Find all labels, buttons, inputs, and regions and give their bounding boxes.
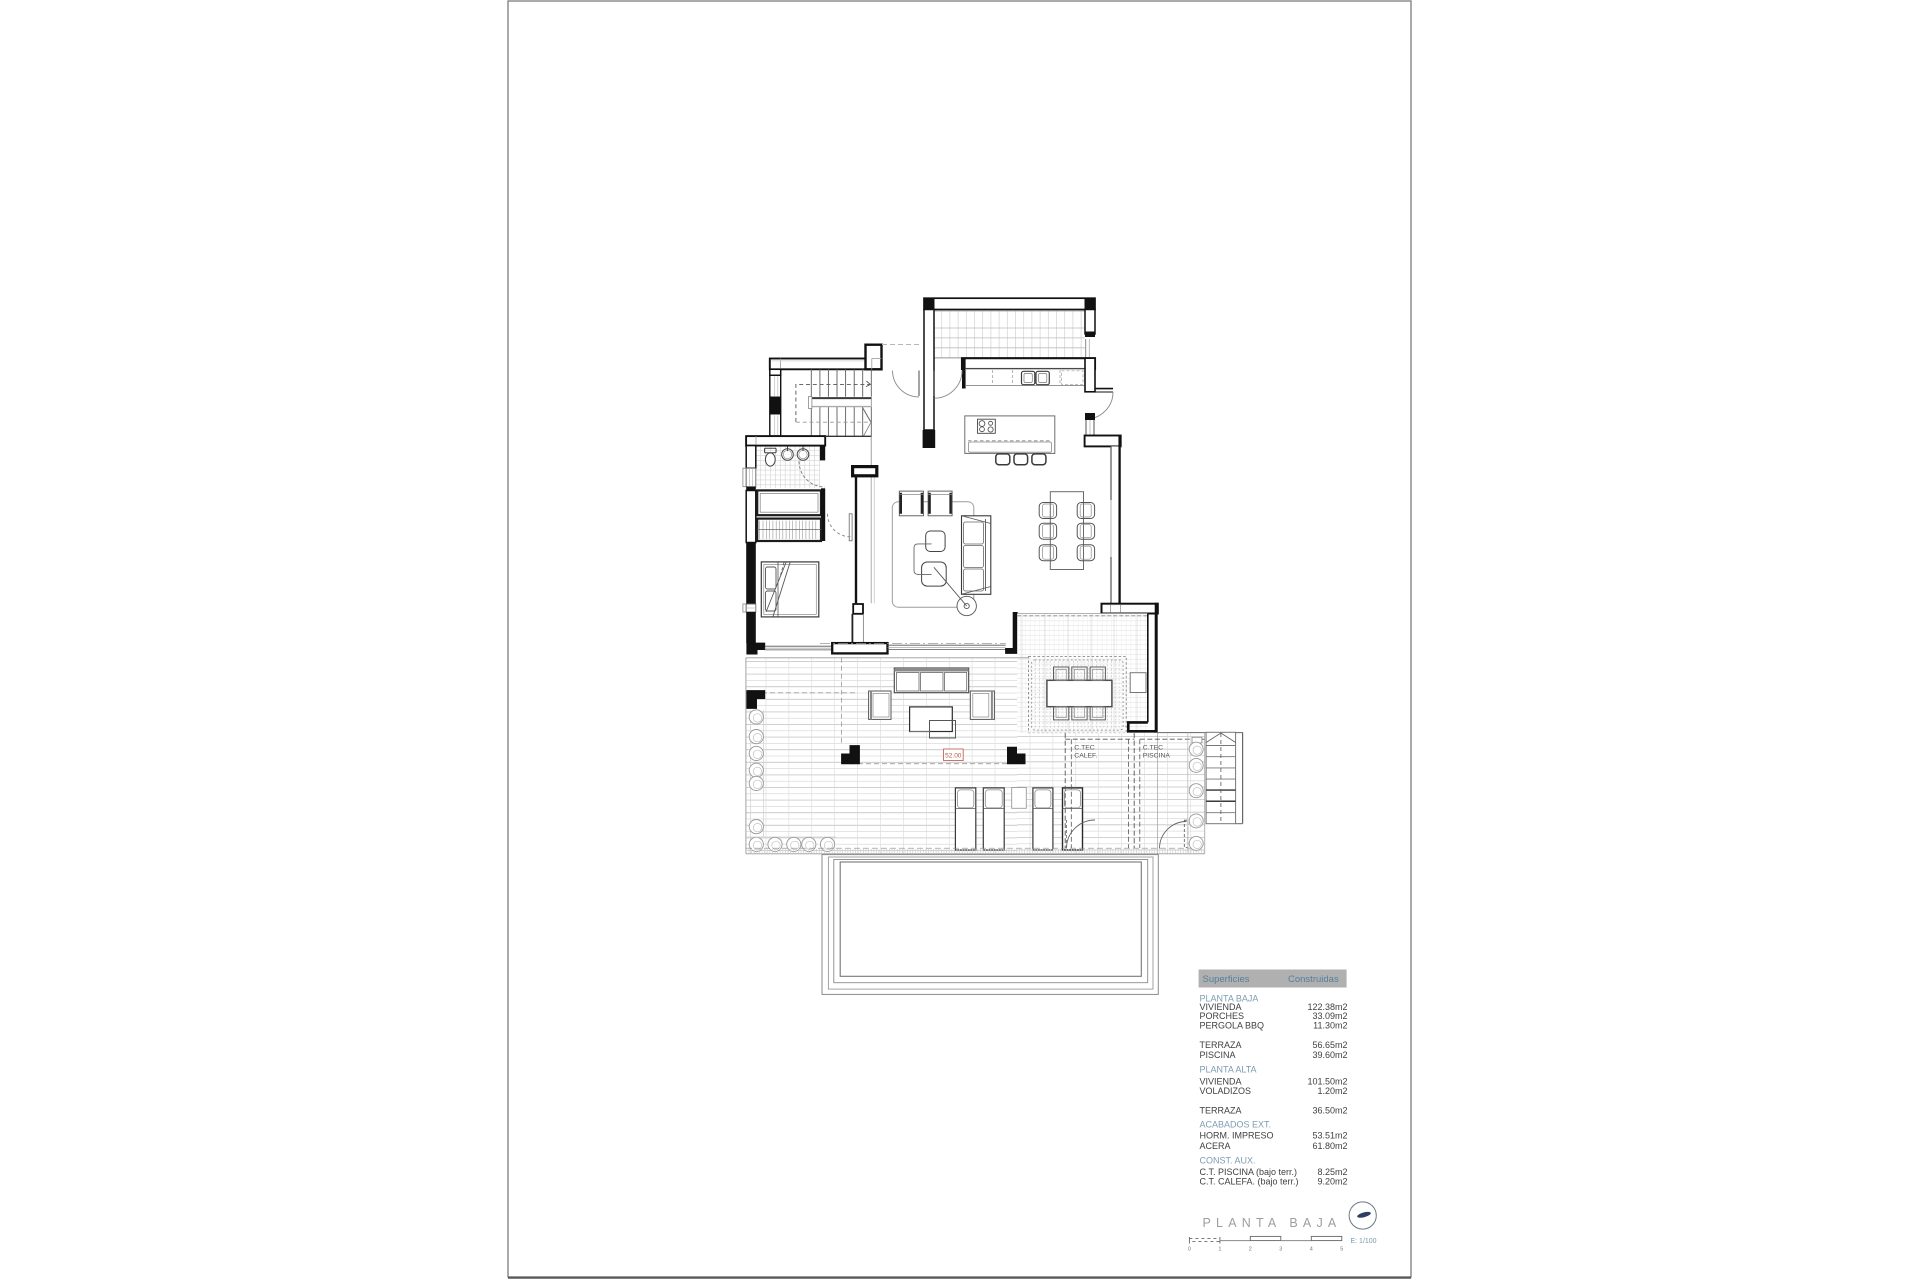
svg-text:C.TEC: C.TEC	[1074, 745, 1094, 752]
svg-text:C.T. PISCINA (bajo terr.): C.T. PISCINA (bajo terr.)	[1200, 1167, 1298, 1177]
svg-text:TERRAZA: TERRAZA	[1200, 1106, 1242, 1116]
svg-text:56.65m2: 56.65m2	[1312, 1040, 1347, 1050]
svg-text:VIVIENDA: VIVIENDA	[1200, 1077, 1242, 1087]
svg-text:36.50m2: 36.50m2	[1312, 1106, 1347, 1116]
svg-text:E: 1/100: E: 1/100	[1351, 1238, 1377, 1245]
svg-text:61.80m2: 61.80m2	[1312, 1141, 1347, 1151]
svg-text:4: 4	[1310, 1247, 1313, 1253]
svg-text:3: 3	[1279, 1247, 1282, 1253]
svg-text:PLANTA BAJA: PLANTA BAJA	[1203, 1216, 1342, 1230]
svg-text:PISCINA: PISCINA	[1143, 753, 1171, 760]
svg-text:C.TEC: C.TEC	[1143, 745, 1163, 752]
svg-text:Construidas: Construidas	[1288, 974, 1339, 985]
svg-text:1: 1	[1218, 1247, 1221, 1253]
svg-text:33.09m2: 33.09m2	[1312, 1011, 1347, 1021]
svg-text:8.25m2: 8.25m2	[1317, 1167, 1347, 1177]
svg-text:9.20m2: 9.20m2	[1317, 1177, 1347, 1187]
svg-text:PLANTA ALTA: PLANTA ALTA	[1200, 1065, 1257, 1075]
svg-text:CALEF.: CALEF.	[1074, 753, 1097, 760]
svg-text:PISCINA: PISCINA	[1200, 1050, 1236, 1060]
svg-text:ACERA: ACERA	[1200, 1141, 1231, 1151]
svg-text:ACABADOS EXT.: ACABADOS EXT.	[1200, 1120, 1272, 1130]
svg-text:VOLADIZOS: VOLADIZOS	[1200, 1086, 1252, 1096]
svg-text:PERGOLA BBQ: PERGOLA BBQ	[1200, 1021, 1265, 1031]
svg-text:Superficies: Superficies	[1203, 974, 1250, 985]
svg-text:C.T. CALEFA. (bajo terr.): C.T. CALEFA. (bajo terr.)	[1200, 1177, 1299, 1187]
svg-text:11.30m2: 11.30m2	[1313, 1021, 1347, 1031]
svg-text:TERRAZA: TERRAZA	[1200, 1040, 1242, 1050]
svg-text:PORCHES: PORCHES	[1200, 1011, 1245, 1021]
svg-text:5: 5	[1340, 1247, 1343, 1253]
svg-text:101.50m2: 101.50m2	[1307, 1077, 1347, 1087]
svg-text:39.60m2: 39.60m2	[1312, 1050, 1347, 1060]
svg-text:2: 2	[1249, 1247, 1252, 1253]
svg-text:HORM. IMPRESO: HORM. IMPRESO	[1200, 1131, 1274, 1141]
svg-text:52.00: 52.00	[945, 753, 962, 760]
svg-text:CONST. AUX.: CONST. AUX.	[1200, 1156, 1256, 1166]
svg-text:0: 0	[1188, 1247, 1191, 1253]
svg-text:1.20m2: 1.20m2	[1317, 1086, 1347, 1096]
svg-text:53.51m2: 53.51m2	[1312, 1131, 1347, 1141]
